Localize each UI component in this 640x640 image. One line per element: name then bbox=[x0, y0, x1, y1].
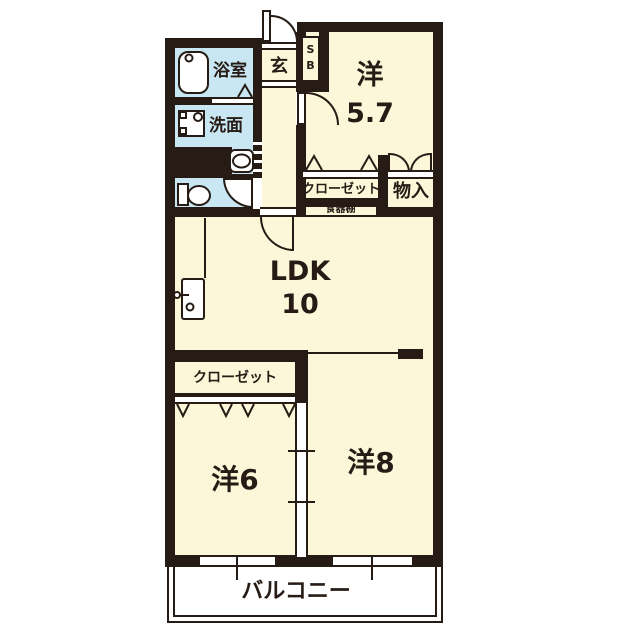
wall-corridor-left-1 bbox=[253, 38, 262, 136]
toilet-doorway bbox=[253, 178, 262, 209]
room57-door-leaf bbox=[297, 92, 306, 125]
washroom-sliding-door bbox=[253, 136, 262, 174]
wall-top-left bbox=[165, 38, 262, 48]
entrance-label: 玄 bbox=[266, 55, 292, 79]
wall-top-right bbox=[297, 22, 443, 32]
ldk-door-leaf bbox=[292, 217, 294, 251]
wall-ldk-bottom bbox=[165, 350, 307, 362]
bathroom-label: 浴室 bbox=[205, 60, 255, 82]
storage-door-leaf-right bbox=[430, 153, 432, 172]
ldk-label: LDK bbox=[260, 255, 340, 287]
wall-right bbox=[433, 22, 443, 567]
ldk-room8-open-line bbox=[308, 352, 400, 354]
closet-lower-door bbox=[175, 395, 295, 404]
ldk-size-label: 10 bbox=[260, 288, 340, 320]
window-room6 bbox=[200, 555, 275, 567]
room57-kanji-label: 洋 bbox=[344, 58, 396, 92]
wall-partition-stub bbox=[295, 350, 308, 403]
room6-label: 洋6 bbox=[205, 463, 265, 497]
entrance-door-leaf bbox=[262, 10, 271, 42]
kitchen-sink bbox=[181, 278, 205, 320]
washroom-label: 洗面 bbox=[203, 115, 249, 137]
room8-label: 洋8 bbox=[341, 446, 401, 480]
cupboard-label: 食器棚 bbox=[305, 204, 376, 215]
toilet-bowl bbox=[187, 185, 211, 206]
room57-size-label: 5.7 bbox=[344, 96, 396, 130]
wall-room8-stub bbox=[398, 349, 423, 359]
shoe-box-label-b: B bbox=[301, 56, 320, 74]
wall-cupboard-right bbox=[376, 198, 388, 217]
movable-partition bbox=[295, 403, 308, 557]
closet-upper-label: クローゼット bbox=[304, 181, 378, 197]
balcony-label: バルコニー bbox=[216, 579, 376, 605]
wall-bottom-1 bbox=[165, 555, 200, 567]
wash-basin-counter bbox=[229, 149, 254, 173]
entrance-threshold bbox=[262, 42, 296, 50]
floor-plan: 浴室 玄 S B 洗面 洋 5.7 クローゼット 物入 食器棚 LDK 10 ク… bbox=[0, 0, 640, 640]
washing-machine bbox=[178, 110, 205, 137]
entrance-door-swing bbox=[271, 15, 298, 42]
wall-left bbox=[165, 38, 175, 567]
wall-toilet-ldk bbox=[175, 207, 262, 217]
closet-lower-label: クローゼット bbox=[177, 366, 293, 390]
closet-upper-door bbox=[303, 170, 379, 179]
wall-storage-bottom bbox=[388, 207, 443, 217]
cupboard-front-line bbox=[305, 215, 376, 217]
storage-label: 物入 bbox=[389, 180, 433, 204]
wall-sb-bottom bbox=[296, 82, 329, 92]
window-room8 bbox=[333, 555, 412, 567]
wall-vanity-block bbox=[175, 147, 232, 174]
wall-sb-right bbox=[319, 32, 329, 82]
ldk-doorway bbox=[260, 207, 296, 217]
bathroom-door bbox=[212, 97, 253, 105]
entrance-step bbox=[262, 80, 296, 88]
wall-bottom-3 bbox=[412, 555, 443, 567]
kitchen-counter-line bbox=[204, 218, 206, 278]
